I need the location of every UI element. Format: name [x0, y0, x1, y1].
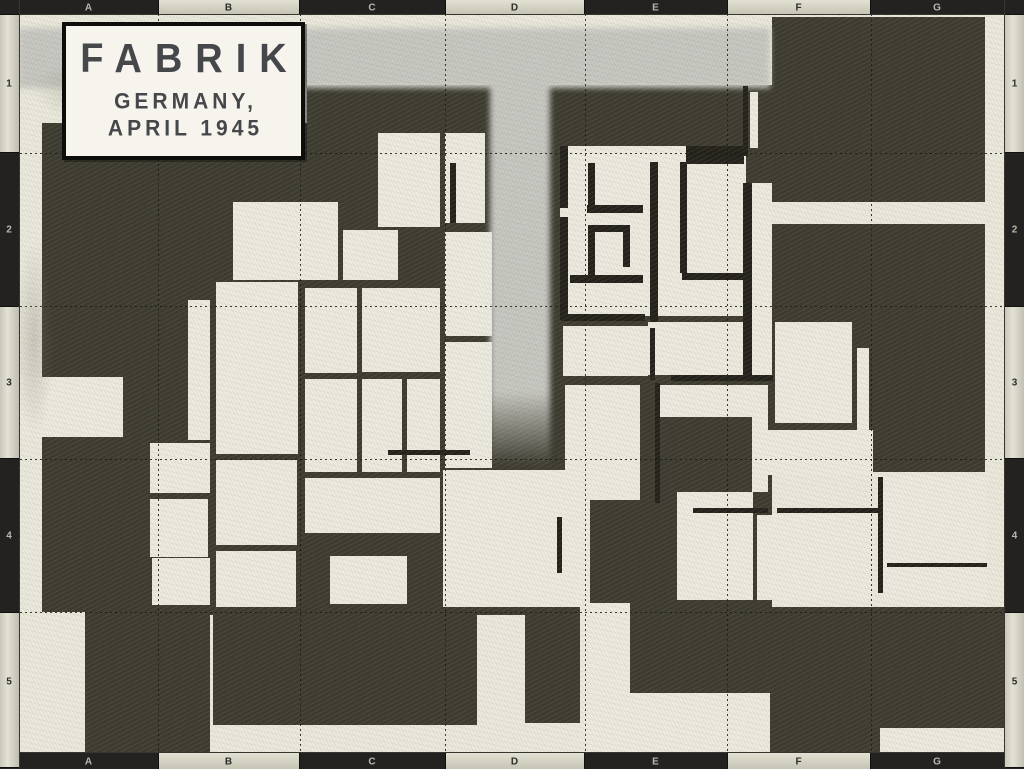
grid-row-label-4: 4: [6, 530, 13, 541]
building-block: [213, 612, 477, 725]
wall-segment: [682, 273, 750, 280]
room: [445, 232, 492, 336]
grid-line-horizontal: [20, 612, 1004, 613]
grid-column-label-A: A: [85, 757, 93, 768]
room: [233, 202, 338, 280]
grid-column-label-A: A: [85, 3, 93, 14]
grid-row-label-2: 2: [6, 224, 13, 235]
building-block: [85, 612, 210, 752]
wall-segment: [588, 225, 595, 277]
grid-row-label-1: 1: [1012, 78, 1019, 89]
wall-segment: [388, 450, 470, 455]
wall-segment: [587, 205, 643, 213]
wall-segment: [693, 508, 768, 513]
grid-line-horizontal: [20, 306, 1004, 307]
room: [563, 326, 648, 376]
grid-line-vertical: [727, 14, 728, 752]
wall-segment: [650, 328, 655, 380]
wall-segment: [588, 163, 595, 207]
grid-row-label-4: 4: [1012, 530, 1019, 541]
grid-column-label-B: B: [225, 757, 233, 768]
grid-row-label-1: 1: [6, 78, 13, 89]
wall-segment: [561, 314, 645, 321]
wall-segment: [560, 146, 568, 208]
room: [188, 300, 210, 440]
grid-column-label-B: B: [225, 3, 233, 14]
wall-segment: [557, 517, 562, 573]
wall-segment: [887, 563, 987, 567]
grid-column-label-E: E: [652, 3, 660, 14]
room: [343, 230, 398, 280]
wall-segment: [878, 477, 883, 593]
wall-segment: [623, 227, 630, 267]
grid-frame-bottom: ABCDEFG: [0, 752, 1024, 769]
room: [216, 460, 297, 545]
wall-segment: [650, 162, 658, 322]
grid-line-vertical: [585, 14, 586, 752]
room: [752, 183, 772, 380]
wall-segment: [743, 86, 748, 156]
room: [565, 385, 640, 500]
wall-segment: [560, 217, 568, 320]
wall-segment: [570, 275, 643, 283]
grid-frame-right: 12345: [1004, 0, 1024, 768]
grid-line-horizontal: [20, 459, 1004, 460]
wall-segment: [655, 383, 660, 503]
wall-segment: [686, 146, 744, 164]
grid-column-label-D: D: [511, 757, 519, 768]
wall-segment: [743, 183, 752, 380]
wall-segment: [450, 163, 456, 223]
map-subtitle-date: APRIL 1945: [104, 114, 263, 143]
grid-column-label-F: F: [795, 757, 802, 768]
grid-column-label-C: C: [368, 3, 376, 14]
room: [580, 693, 770, 752]
room: [880, 728, 1004, 752]
room: [305, 288, 357, 373]
grid-frame-top: ABCDEFG: [0, 0, 1024, 15]
room: [775, 322, 852, 423]
grid-column-label-G: G: [933, 3, 942, 14]
room: [378, 133, 440, 227]
room: [857, 348, 869, 472]
grid-tab-row-5: [1005, 612, 1024, 768]
wall-segment: [680, 162, 687, 273]
grid-column-label-F: F: [795, 3, 802, 14]
map-title: FABRIK: [67, 38, 299, 81]
building-block: [772, 17, 985, 202]
room: [216, 551, 296, 607]
grid-tab-row-5: [0, 612, 19, 768]
map-title-box: FABRIK GERMANY, APRIL 1945: [62, 22, 305, 160]
grid-frame-left: 12345: [0, 0, 20, 768]
map-subtitle-country: GERMANY,: [110, 87, 257, 116]
road-stem: [490, 54, 550, 466]
room: [216, 282, 298, 454]
grid-row-label-3: 3: [1012, 377, 1019, 388]
room: [362, 288, 440, 372]
grid-row-label-5: 5: [6, 677, 13, 688]
room: [655, 385, 768, 417]
room: [648, 322, 746, 375]
grid-line-vertical: [445, 14, 446, 752]
grid-row-label-2: 2: [1012, 224, 1019, 235]
grid-row-label-5: 5: [1012, 677, 1019, 688]
grid-column-label-E: E: [652, 757, 660, 768]
room: [152, 558, 210, 605]
room: [150, 443, 210, 493]
room: [305, 478, 440, 533]
room: [20, 377, 123, 437]
grid-line-vertical: [871, 14, 872, 752]
grid-column-label-C: C: [368, 757, 376, 768]
room: [330, 556, 407, 604]
grid-column-label-D: D: [511, 3, 519, 14]
grid-column-label-G: G: [933, 757, 942, 768]
building-block: [525, 612, 580, 723]
room: [750, 92, 758, 148]
room: [757, 515, 875, 600]
grid-row-label-3: 3: [6, 377, 13, 388]
wall-segment: [777, 508, 883, 513]
room: [883, 477, 987, 600]
wall-segment: [671, 375, 773, 381]
